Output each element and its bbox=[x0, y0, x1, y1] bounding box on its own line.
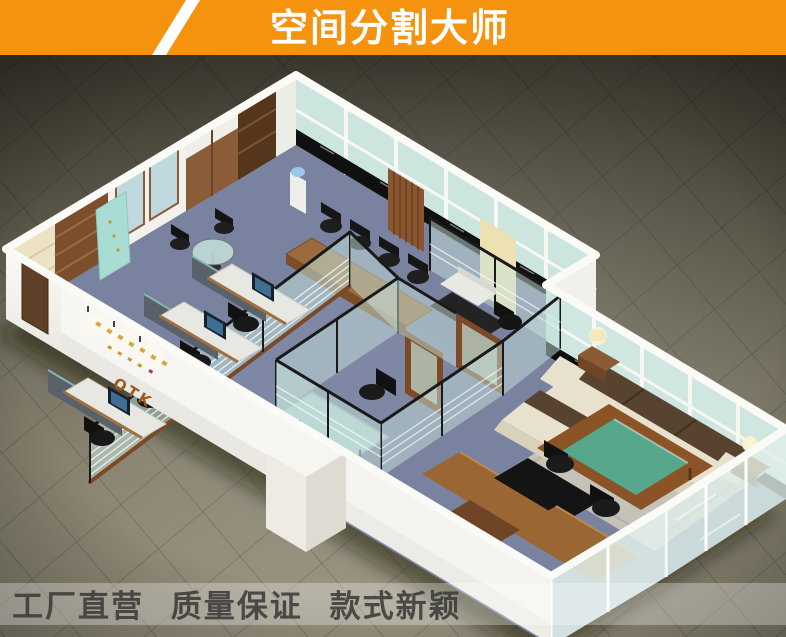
product-image: OTK 空间分割大师 工厂直营 质量保证 款式新颖 bbox=[0, 0, 786, 637]
banner-title: 空间分割大师 bbox=[270, 6, 510, 50]
bottom-slogan: 工厂直营 质量保证 款式新颖 bbox=[0, 583, 786, 625]
slogan-text: 工厂直营 质量保证 款式新颖 bbox=[12, 589, 462, 625]
top-banner: 空间分割大师 bbox=[0, 0, 786, 55]
office-render-scene: OTK 空间分割大师 工厂直营 质量保证 款式新颖 bbox=[0, 0, 786, 637]
